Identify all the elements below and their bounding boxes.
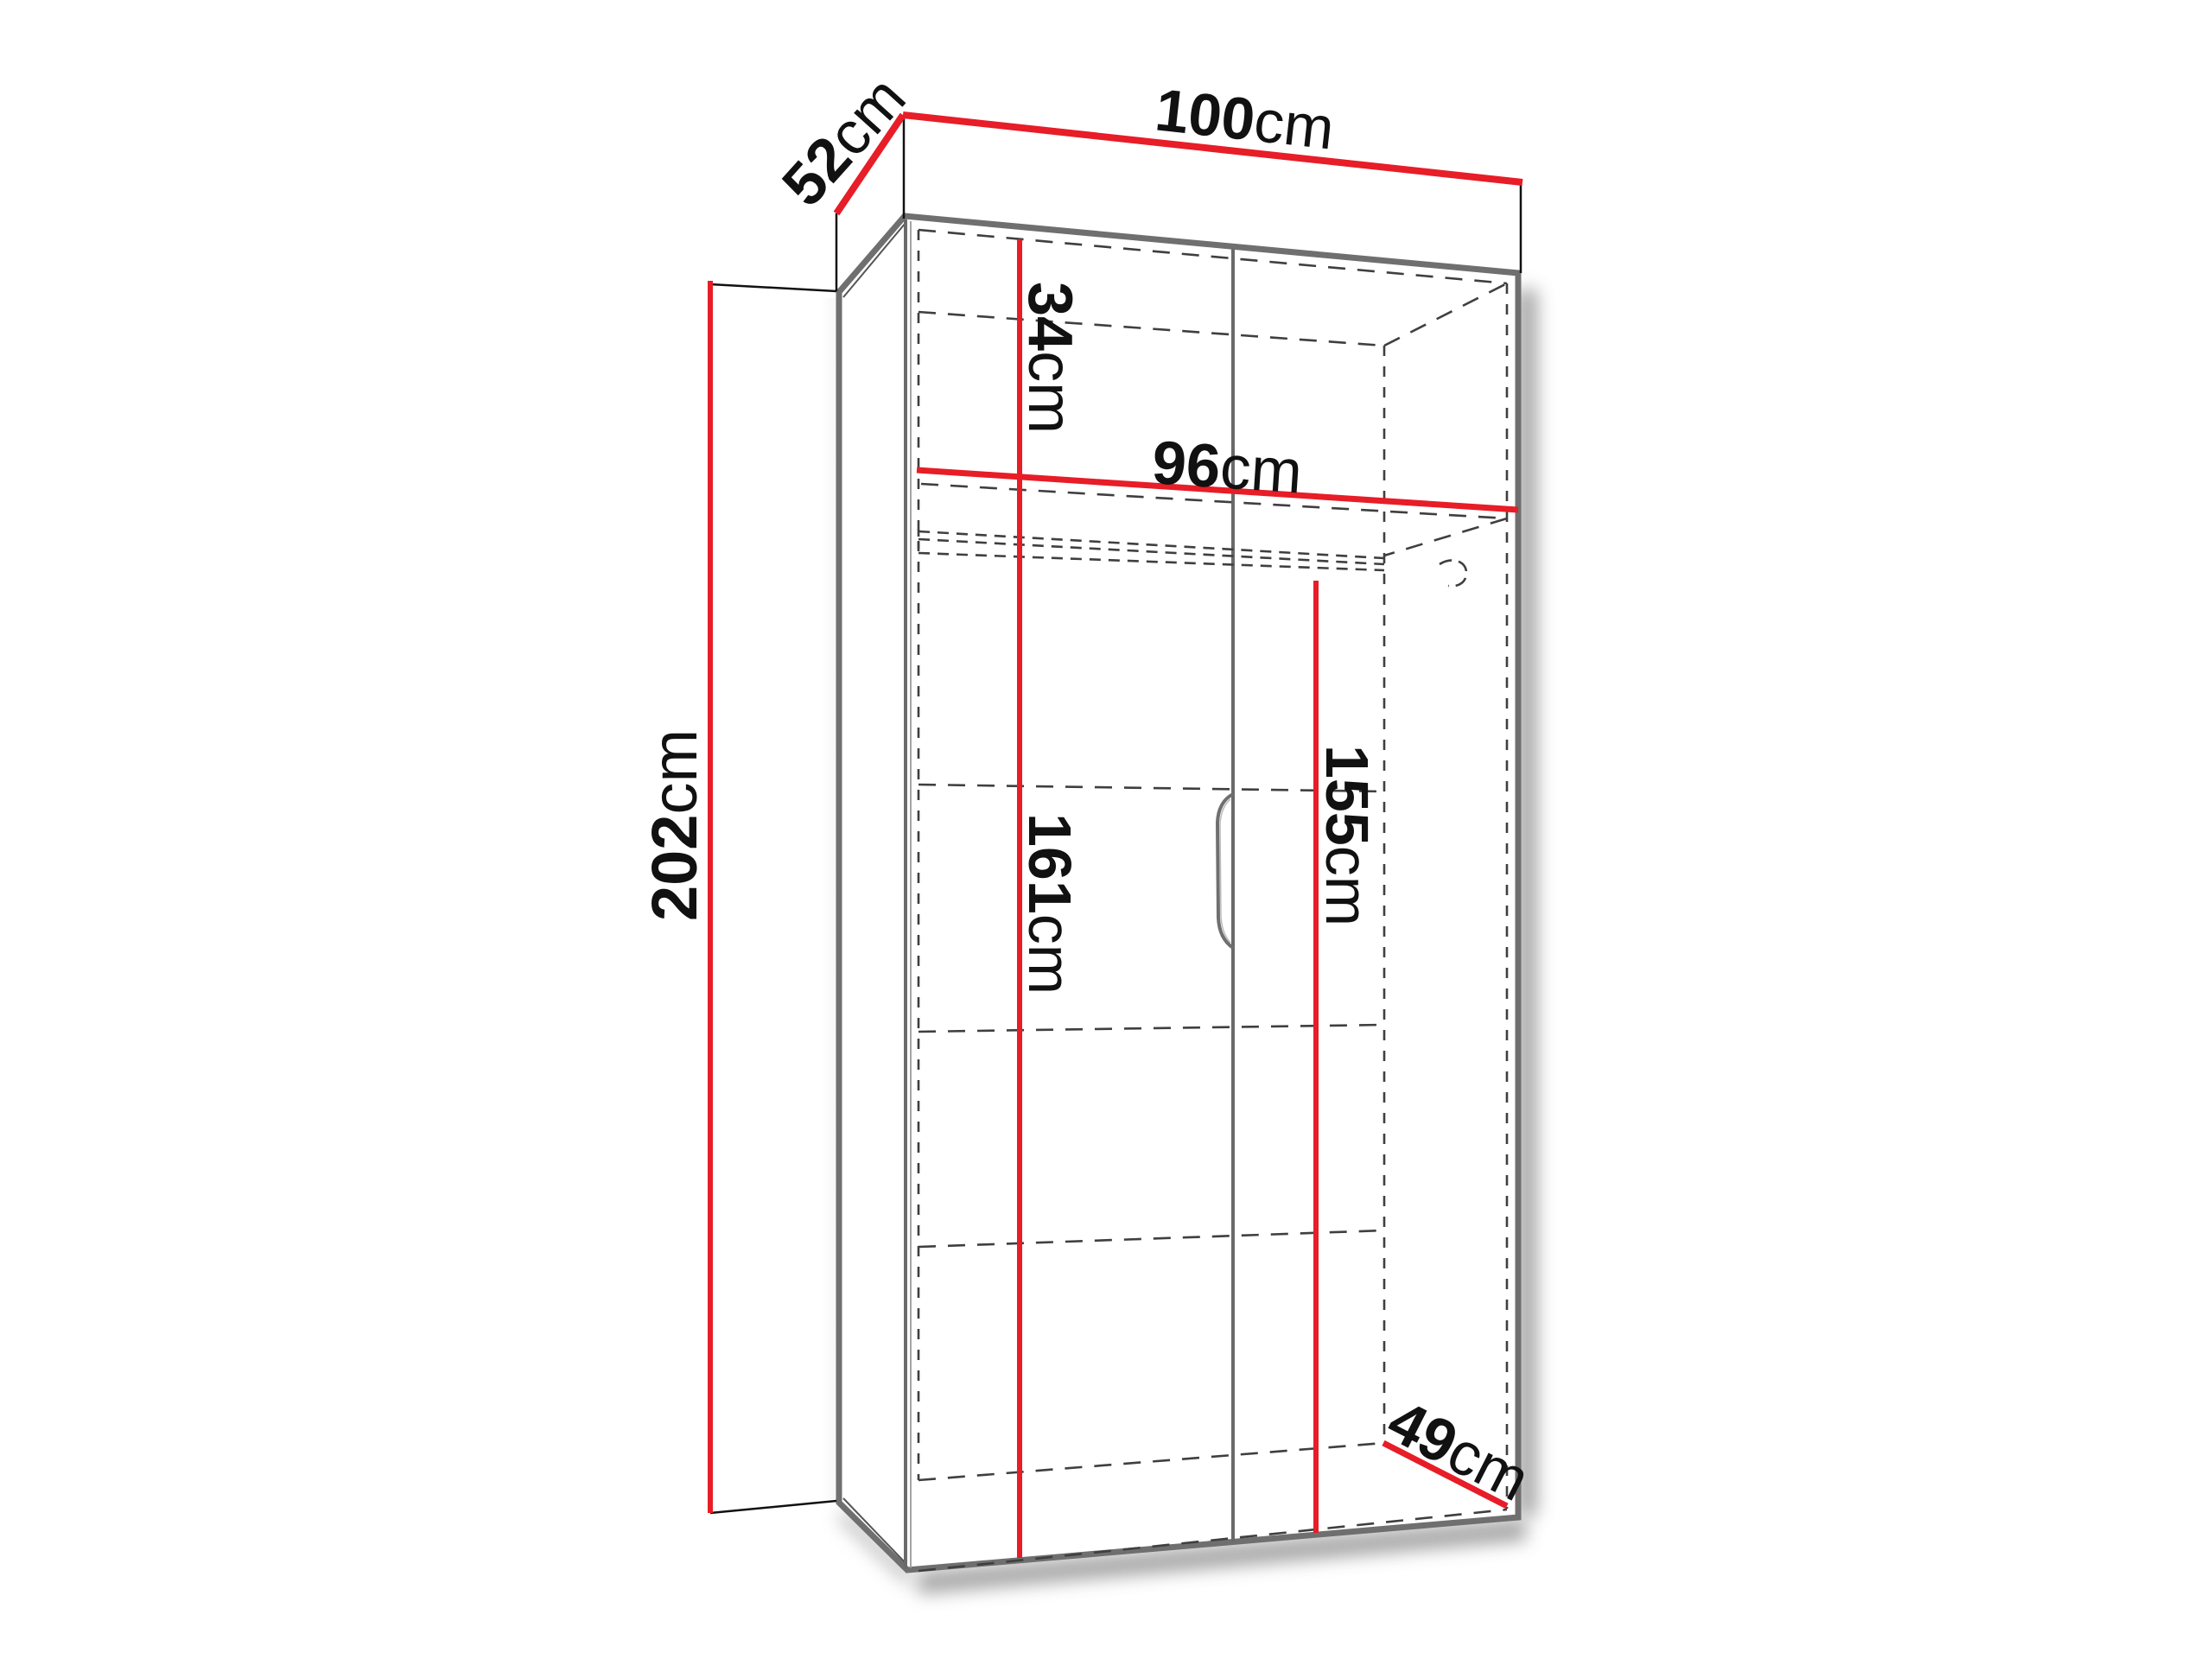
svg-text:96cm: 96cm [1150, 429, 1304, 506]
svg-text:100cm: 100cm [1152, 76, 1337, 162]
svg-text:202cm: 202cm [639, 729, 710, 921]
svg-text:52cm: 52cm [769, 64, 918, 219]
svg-text:155cm: 155cm [1313, 745, 1381, 926]
svg-text:34cm: 34cm [1015, 282, 1084, 434]
svg-text:161cm: 161cm [1016, 813, 1084, 995]
